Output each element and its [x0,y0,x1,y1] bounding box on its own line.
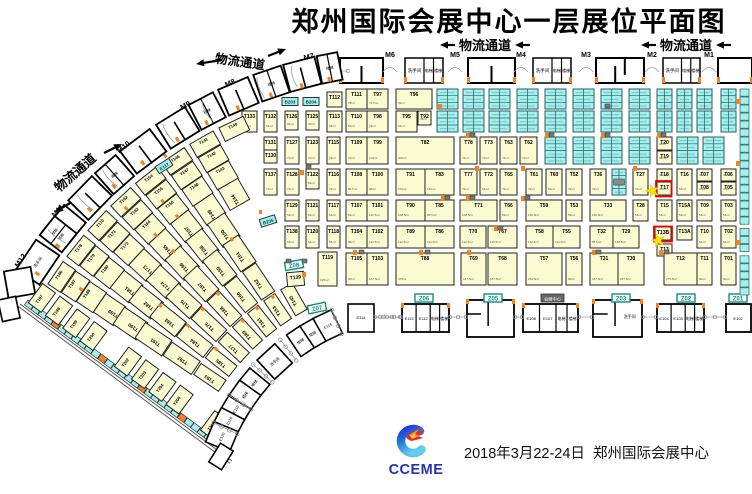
svg-text:T109: T109 [351,140,363,146]
svg-text:洗手间: 洗手间 [536,67,550,74]
svg-text:112.5m²: 112.5m² [369,240,380,244]
svg-text:T68: T68 [498,256,507,262]
svg-text:T112: T112 [329,95,340,101]
svg-text:375m²: 375m² [398,277,407,281]
svg-text:电梯: 电梯 [431,315,439,321]
svg-text:112.5m²: 112.5m² [398,240,409,244]
svg-text:54m²: 54m² [287,213,294,217]
svg-text:72m²: 72m² [502,156,509,160]
svg-text:T120: T120 [307,229,319,235]
svg-text:T57: T57 [540,256,549,262]
svg-text:85.5m²: 85.5m² [592,240,601,244]
svg-text:T31: T31 [600,256,609,262]
svg-text:36m²: 36m² [420,117,427,121]
svg-text:232.5m²: 232.5m² [528,277,539,281]
svg-text:T91: T91 [406,172,415,178]
svg-text:T132: T132 [265,114,277,120]
svg-text:90m²: 90m² [699,277,706,281]
svg-text:E113: E113 [405,316,415,321]
svg-text:T105: T105 [351,256,363,262]
svg-text:72m²: 72m² [462,156,469,160]
svg-text:T121: T121 [307,203,319,209]
svg-text:T129: T129 [286,203,298,209]
svg-text:36m²: 36m² [699,173,706,177]
svg-text:T65: T65 [504,172,513,178]
svg-text:72m²: 72m² [482,156,489,160]
svg-text:T09: T09 [700,203,709,209]
svg-text:72m²: 72m² [348,156,355,160]
svg-text:郑州国际会展中心: 郑州国际会展中心 [593,445,709,462]
svg-text:T99: T99 [373,140,382,146]
svg-text:135m²: 135m² [320,278,329,282]
svg-text:72m²: 72m² [369,124,376,128]
svg-text:54m²: 54m² [266,124,273,128]
svg-text:T139: T139 [289,274,301,281]
svg-text:187.5m²: 187.5m² [369,277,380,281]
svg-text:T118: T118 [328,229,339,235]
svg-text:54m²: 54m² [699,240,706,244]
svg-text:T63: T63 [504,140,513,146]
svg-text:T13B: T13B [657,230,670,236]
svg-text:54m²: 54m² [482,187,489,191]
svg-text:T15: T15 [660,203,669,209]
svg-text:电梯: 电梯 [558,315,566,321]
svg-text:物流通道: 物流通道 [660,38,712,53]
svg-text:112.5m²: 112.5m² [369,213,380,217]
svg-text:楼梯: 楼梯 [440,315,448,321]
svg-text:T82: T82 [421,140,430,146]
svg-text:T71: T71 [474,203,483,209]
svg-text:T60: T60 [550,172,559,178]
svg-text:E114: E114 [356,315,366,320]
svg-text:T128: T128 [286,172,298,178]
svg-text:Z06: Z06 [419,296,430,302]
svg-text:Z01: Z01 [733,296,744,302]
svg-text:54m²: 54m² [699,213,706,217]
svg-text:72m²: 72m² [462,187,469,191]
svg-text:电梯: 电梯 [686,315,694,321]
svg-text:54m²: 54m² [308,213,315,217]
svg-text:T62: T62 [524,140,533,146]
svg-text:54m²: 54m² [635,213,642,217]
svg-text:112.5m²: 112.5m² [555,240,566,244]
svg-text:电梯: 电梯 [553,67,561,73]
svg-text:54m²: 54m² [308,240,315,244]
svg-text:T95: T95 [402,114,411,120]
svg-text:36m²: 36m² [287,122,294,126]
svg-text:楼梯: 楼梯 [569,315,577,321]
svg-text:T16: T16 [680,172,689,178]
svg-text:2018年3月22-24日: 2018年3月22-24日 [464,445,585,462]
svg-text:187.5m²: 187.5m² [592,277,603,281]
svg-text:36m²: 36m² [659,142,666,146]
svg-text:E104: E104 [659,316,669,321]
svg-text:72m²: 72m² [308,156,315,160]
svg-text:T77: T77 [464,172,473,178]
svg-text:T122: T122 [307,172,319,178]
svg-text:112.5m²: 112.5m² [427,240,438,244]
svg-text:54m²: 54m² [502,213,509,217]
svg-text:T130: T130 [265,153,277,159]
svg-text:72m²: 72m² [592,187,599,191]
svg-text:T28: T28 [636,203,645,209]
svg-text:72m²: 72m² [266,187,273,191]
svg-text:54m²: 54m² [679,213,686,217]
svg-text:T02: T02 [724,229,733,235]
svg-text:136.5m²: 136.5m² [592,213,603,217]
svg-text:M4: M4 [516,52,526,59]
svg-text:54m²: 54m² [548,187,555,191]
svg-text:54m²: 54m² [329,124,336,128]
svg-text:洗手间: 洗手间 [408,67,422,74]
svg-text:T131: T131 [265,140,277,146]
svg-text:E107: E107 [543,316,553,321]
svg-text:洗手间: 洗手间 [665,67,679,74]
svg-text:54m²: 54m² [287,240,294,244]
svg-text:T127: T127 [286,140,298,146]
svg-text:72.5m²: 72.5m² [369,101,378,105]
svg-text:楼梯: 楼梯 [434,67,442,73]
svg-text:T32: T32 [597,229,606,235]
svg-text:72m²: 72m² [329,156,336,160]
svg-text:36m²: 36m² [659,187,666,191]
svg-text:90m²: 90m² [568,277,575,281]
svg-text:108.5m²: 108.5m² [462,213,473,217]
svg-text:T01: T01 [724,256,733,262]
svg-text:T11: T11 [700,256,709,262]
svg-text:T108: T108 [351,172,363,178]
svg-text:36m²: 36m² [723,173,730,177]
svg-text:T72: T72 [484,172,493,178]
svg-text:86.5m²: 86.5m² [348,187,357,191]
svg-text:72m²: 72m² [287,156,294,160]
svg-text:54m²: 54m² [348,213,355,217]
svg-text:T125: T125 [307,114,319,120]
svg-text:T61: T61 [530,172,539,178]
svg-text:112.5m²: 112.5m² [490,240,501,244]
svg-text:T10: T10 [700,229,709,235]
svg-text:93m²: 93m² [398,101,405,105]
svg-text:36m²: 36m² [659,173,666,177]
svg-text:54m²: 54m² [329,213,336,217]
svg-text:72m²: 72m² [287,187,294,191]
svg-text:85.5m²: 85.5m² [427,213,436,217]
svg-text:150m²: 150m² [427,187,436,191]
svg-text:E103: E103 [673,316,683,321]
svg-text:112.5m²: 112.5m² [462,240,473,244]
svg-text:T15A: T15A [678,203,691,209]
svg-text:T97: T97 [373,92,382,98]
svg-text:T126: T126 [286,114,298,120]
svg-text:T52: T52 [570,172,579,178]
svg-text:Z02: Z02 [681,296,692,302]
svg-text:T119: T119 [322,255,333,261]
svg-text:T83: T83 [435,172,444,178]
svg-text:E112: E112 [419,316,429,321]
svg-text:36m²: 36m² [308,122,315,126]
svg-text:54m²: 54m² [308,181,315,185]
svg-text:T107: T107 [351,203,363,209]
svg-text:T117: T117 [328,203,339,209]
svg-text:T123: T123 [307,140,319,146]
svg-text:63m²: 63m² [348,124,355,128]
svg-text:96m²: 96m² [369,187,376,191]
svg-text:电梯: 电梯 [425,67,433,73]
svg-text:洗手间: 洗手间 [624,313,636,319]
svg-text:B203: B203 [285,100,296,105]
svg-text:T29: T29 [622,229,631,235]
svg-text:54m²: 54m² [329,240,336,244]
svg-text:T104: T104 [351,229,363,235]
svg-text:T138: T138 [286,229,298,235]
svg-text:187.5m²: 187.5m² [490,277,501,281]
svg-text:90m²: 90m² [723,277,730,281]
svg-text:楼梯: 楼梯 [562,67,570,73]
svg-text:T55: T55 [562,229,571,235]
svg-text:72m²: 72m² [502,187,509,191]
svg-text:T56: T56 [570,256,579,262]
svg-text:T03: T03 [724,203,733,209]
svg-text:150m²: 150m² [398,187,407,191]
svg-text:72m²: 72m² [522,156,529,160]
svg-text:T30: T30 [627,256,636,262]
svg-text:54m²: 54m² [568,213,575,217]
svg-text:T53: T53 [570,203,579,209]
svg-text:187.5m²: 187.5m² [620,277,631,281]
svg-text:T137: T137 [265,172,277,178]
svg-text:187.5m²: 187.5m² [463,277,474,281]
svg-text:72m²: 72m² [329,187,336,191]
svg-text:电梯: 电梯 [682,67,690,73]
svg-text:T33: T33 [604,203,613,209]
svg-text:96m²: 96m² [348,240,355,244]
svg-text:B204: B204 [306,100,317,105]
svg-text:T110: T110 [351,114,362,120]
svg-text:54m²: 54m² [679,187,686,191]
svg-text:T27: T27 [636,172,645,178]
svg-text:T59: T59 [540,203,549,209]
svg-text:会服中心: 会服中心 [544,295,562,302]
svg-text:M2: M2 [647,52,657,59]
svg-text:M3: M3 [581,52,591,59]
svg-text:Z03: Z03 [616,296,627,302]
svg-text:72m²: 72m² [568,187,575,191]
svg-text:E108: E108 [527,316,537,321]
svg-text:138.5m²: 138.5m² [615,240,626,244]
svg-text:78m²: 78m² [348,101,355,105]
svg-text:物流通道: 物流通道 [459,38,511,53]
svg-text:T98: T98 [373,114,382,120]
svg-text:T111: T111 [351,92,362,98]
svg-text:T73: T73 [484,140,493,146]
svg-text:郑州国际会展中心一层展位平面图: 郑州国际会展中心一层展位平面图 [292,6,727,37]
svg-text:T116: T116 [328,172,339,178]
svg-text:Z05: Z05 [488,296,499,302]
svg-text:T85: T85 [435,203,444,209]
svg-text:72m²: 72m² [528,187,535,191]
svg-text:楼梯: 楼梯 [695,315,703,321]
svg-text:T69: T69 [469,256,478,262]
svg-text:楼梯: 楼梯 [691,67,699,73]
svg-text:T12: T12 [676,256,685,262]
svg-text:72m²: 72m² [635,187,642,191]
svg-text:T100: T100 [372,172,384,178]
svg-text:T115: T115 [328,140,339,146]
svg-text:112.5m²: 112.5m² [528,240,539,244]
svg-text:36m²: 36m² [723,187,730,191]
svg-text:T96: T96 [410,92,419,98]
svg-text:CCEME: CCEME [389,462,444,478]
svg-text:T58: T58 [535,229,544,235]
svg-text:36m²: 36m² [699,187,706,191]
svg-text:36m²: 36m² [659,156,666,160]
svg-text:M5: M5 [450,52,460,59]
svg-text:54m²: 54m² [723,240,730,244]
svg-text:100m²: 100m² [369,156,378,160]
svg-text:T90: T90 [406,203,415,209]
svg-text:54m²: 54m² [398,124,405,128]
svg-text:T103: T103 [372,256,384,262]
svg-text:T101: T101 [372,203,384,209]
svg-text:T102: T102 [372,229,384,235]
svg-text:T36: T36 [594,172,603,178]
svg-text:M6: M6 [385,52,395,59]
svg-text:300m²: 300m² [398,156,407,160]
svg-text:T133: T133 [244,114,256,120]
svg-text:54m²: 54m² [659,213,666,217]
svg-text:T86: T86 [435,229,444,235]
svg-text:175.5m²: 175.5m² [666,277,677,281]
svg-text:108.5m²: 108.5m² [398,213,409,217]
svg-text:T88: T88 [421,256,430,262]
svg-text:T78: T78 [464,140,473,146]
svg-text:M1: M1 [704,52,714,59]
svg-text:90m²: 90m² [348,277,355,281]
svg-text:E102: E102 [733,316,743,321]
svg-text:T13A: T13A [678,229,691,235]
svg-text:T70: T70 [469,229,478,235]
svg-text:T113: T113 [329,114,340,120]
svg-text:T66: T66 [504,203,513,209]
svg-text:54m²: 54m² [723,213,730,217]
svg-text:T89: T89 [406,229,415,235]
svg-text:136.5m²: 136.5m² [528,213,539,217]
